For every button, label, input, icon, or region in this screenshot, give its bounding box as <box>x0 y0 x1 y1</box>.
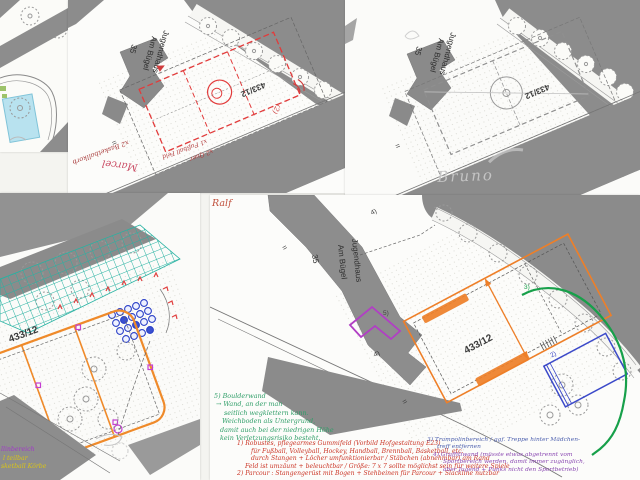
purple-note-line: Sportbereich werden, damit immer zugängl… <box>433 459 639 466</box>
scan-collage: Jugendhaus Am Bügel 35 433/12 = <box>0 0 640 480</box>
green-mark <box>0 86 6 91</box>
green-note-block: 5) Boulderwand → Wand, an der man seitli… <box>214 392 334 442</box>
panel-bottom-left: 433/12 <box>0 193 200 480</box>
author-signature-bruno: Bruno <box>437 166 494 186</box>
green-path-label: 3) <box>524 284 530 291</box>
note-yellow-fragment-1: l teilbar <box>3 455 28 462</box>
note-yellow-fragment-2: sketball Körbe <box>1 463 46 470</box>
blue-note-block: 3) Trampolinbereich / ggf. Treppe hinter… <box>427 437 580 451</box>
note-purple-fragment: llinbereich <box>1 446 35 453</box>
green-note-line: → Wand, an der man <box>214 400 334 408</box>
top-left-plan <box>0 0 68 152</box>
blue-note-line: 3) Trampolinbereich / ggf. Treppe hinter… <box>427 437 580 444</box>
bottom-left-plan: 433/12 <box>0 193 200 480</box>
purple-area-label: 5) <box>383 310 389 317</box>
green-note-line: seitlich wegklettern kann. <box>214 409 334 417</box>
panel-top-left <box>0 0 68 152</box>
purple-note-line: aber Jugend + Punks nicht den Sportbetri… <box>433 467 639 474</box>
green-note-line: 5) Boulderwand <box>214 392 334 400</box>
green-note-line: damit auch bei der niedrigen Höhe <box>214 426 334 434</box>
green-note-line: Weichboden als Untergrund, <box>214 417 334 425</box>
green-mark <box>2 94 7 98</box>
purple-note-block: 4) Graffitiwand (müsste etwas abgetrennt… <box>433 452 639 474</box>
purple-note-line: 4) Graffitiwand (müsste etwas abgetrennt… <box>433 452 639 459</box>
author-signature-ralf: Ralf <box>212 198 232 209</box>
blue-note-line: treff entfernen <box>427 444 580 451</box>
